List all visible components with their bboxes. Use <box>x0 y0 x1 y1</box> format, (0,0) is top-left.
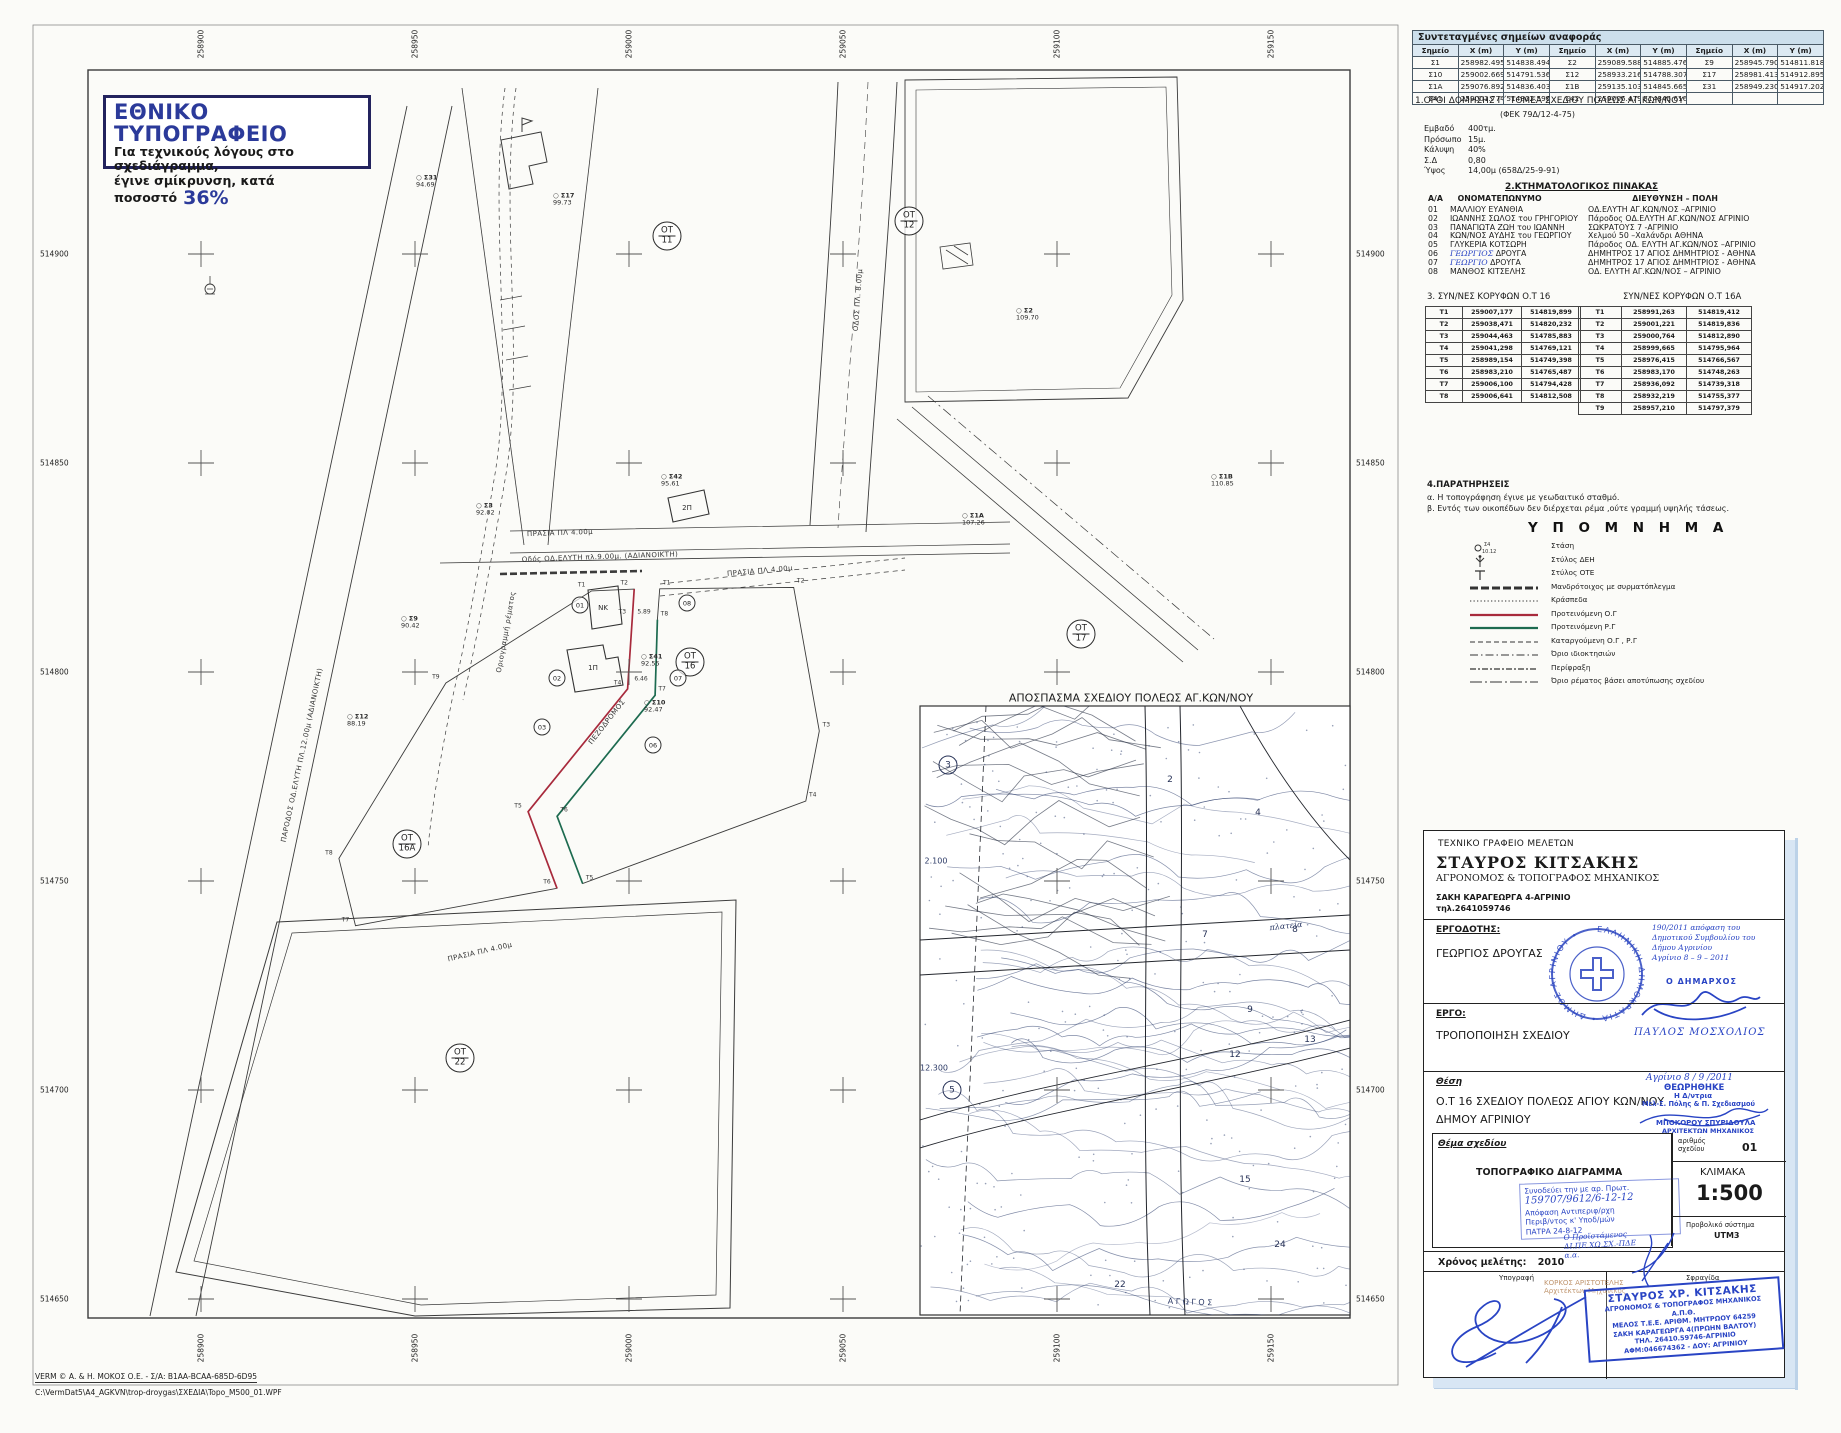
vertex-label-ot16: Τ6 <box>560 807 567 814</box>
drawing-no-label1: αριθμός <box>1678 1137 1706 1145</box>
grid-coordinate-label: 514850 <box>1356 459 1385 468</box>
grid-coordinate-label: 258900 <box>197 30 206 59</box>
inset-parcel-number: 9 <box>1247 1005 1253 1015</box>
study-label: Χρόνος μελέτης: <box>1438 1257 1526 1268</box>
legend-item-dots: Κράσπεδα <box>1468 594 1548 608</box>
printer-note-title: ΕΘΝΙΚΟ ΤΥΠΟΓΡΑΦΕΙΟ <box>114 101 360 145</box>
inset-parcel-number: 13 <box>1304 1035 1315 1045</box>
legend-item-wall: Μανδρότοιχος με συρματόπλεγμα <box>1468 581 1548 595</box>
grid-coordinate-label: 259000 <box>625 30 634 59</box>
building-term: Σ.Δ0,80 <box>1424 156 1486 165</box>
vertex-label-ot16a: Τ8 <box>325 849 332 856</box>
vertex-row: Τ6258983,170514748,263 <box>1579 367 1752 379</box>
grid-coordinate-label: 259000 <box>625 1334 634 1363</box>
vertex-label-ot16a: Τ5 <box>514 802 521 809</box>
parcel-number: 02 <box>549 670 566 687</box>
inset-sector-number: 3 <box>939 756 958 775</box>
engineer-address: ΣΑΚΗ ΚΑΡΑΓΕΩΡΓΑ 4-ΑΓΡΙΝΙΟ <box>1436 893 1571 902</box>
title-block: ΤΕΧΝΙΚΟ ΓΡΑΦΕΙΟ ΜΕΛΕΤΩΝ ΣΤΑΥΡΟΣ ΚΙΤΣΑΚΗΣ… <box>1423 830 1785 1378</box>
location-line2: ΔΗΜΟΥ ΑΓΡΙΝΙΟΥ <box>1436 1113 1531 1126</box>
vertex-label-ot16: Τ1 <box>663 579 670 586</box>
grid-coordinate-label: 258950 <box>411 30 420 59</box>
greek-cross-icon <box>1580 957 1614 991</box>
signature-label: Υπογραφή <box>1499 1274 1534 1282</box>
building-label: ΝΚ <box>598 604 608 612</box>
parcel-number: 06 <box>645 737 662 754</box>
ot-block-label: ΟΤ11 <box>653 222 682 251</box>
parcel-number: 08 <box>679 595 696 612</box>
study-year: 2010 <box>1538 1257 1564 1268</box>
section2-col-no: Α/Α <box>1428 194 1443 203</box>
employer-label: ΕΡΓΟΔΟΤΗΣ: <box>1436 925 1500 935</box>
inset-parcel-number: 12 <box>1229 1050 1240 1060</box>
vertex-label-ot16: Τ7 <box>658 686 665 693</box>
ref-table-header: Σημείο <box>1413 45 1459 57</box>
vertex-label-ot16a: Τ6 <box>543 879 550 886</box>
legend-label: Όριο ιδιοκτησιών <box>1551 649 1615 658</box>
legend-label: Μανδρότοιχος με συρματόπλεγμα <box>1551 582 1675 591</box>
legend-item-deh: Στύλος ΔΕΗ <box>1468 554 1548 568</box>
section3-heading-right: ΣΥΝ/ΝΕΣ ΚΟΡΥΦΩΝ Ο.Τ 16Α <box>1623 292 1741 302</box>
ot-block-label: ΟΤ22 <box>446 1044 475 1073</box>
legend-item-fence: Περίφραξη <box>1468 662 1548 676</box>
drawing-no-label2: σχεδίου <box>1678 1145 1706 1153</box>
legend-label: Περίφραξη <box>1551 663 1590 672</box>
ref-table-row: Σ10259002.669514791.536Σ12258933.2165147… <box>1413 69 1824 81</box>
legend-label: Στύλος ΟΤΕ <box>1551 568 1594 577</box>
vertex-label-ot16: Τ4 <box>809 792 816 799</box>
subject-name: ΤΟΠΟΓΡΑΦΙΚΟ ΔΙΑΓΡΑΜΜΑ <box>1476 1167 1622 1178</box>
section2-col-addr: ΔΙΕΥΘΥΝΣΗ – ΠΟΛΗ <box>1632 194 1718 203</box>
grid-coordinate-label: 514800 <box>40 668 69 677</box>
legend-label: Στύλος ΔΕΗ <box>1551 555 1595 564</box>
vertex-label-ot16a: Τ4 <box>614 679 621 686</box>
employer-name: ΓΕΩΡΓΙΟΣ ΔΡΟΥΓΑΣ <box>1436 947 1543 960</box>
inset-parcel-number: 24 <box>1274 1240 1285 1250</box>
subject-label: Θέμα σχεδίου <box>1438 1139 1506 1149</box>
scale-label: ΚΛΙΜΑΚΑ <box>1700 1167 1745 1178</box>
cadastral-owner-row: 01ΜΑΛΛΙΟΥ ΕΥΑΝΘΙΑΟΔ.ΕΛΥΤΗ ΑΓ.ΚΩΝ/ΝΟΣ –ΑΓ… <box>1428 205 1716 214</box>
legend-label: Καταργούμενη Ο.Γ , Ρ.Γ <box>1551 636 1637 645</box>
section3-heading-left: 3. ΣΥΝ/ΝΕΣ ΚΟΡΥΦΩΝ Ο.Τ 16 <box>1427 292 1550 302</box>
project-label: ΕΡΓΟ: <box>1436 1009 1466 1019</box>
legend-item-stream: Όριο ρέματος βάσει αποτύπωσης σχεδίου <box>1468 675 1548 689</box>
project-name: ΤΡΟΠΟΠΟΙΗΣΗ ΣΧΕΔΙΟΥ <box>1436 1029 1570 1042</box>
stream-line1 <box>428 88 505 848</box>
approval-date: Αγρίνιο 8 / 9 /2011 <box>1646 1073 1733 1083</box>
inset-parcel-number: 7 <box>1202 930 1208 940</box>
council-decision-note: 190/2011 απόφαση τουΔημοτικού Συμβουλίου… <box>1652 923 1755 964</box>
grid-coordinate-label: 259100 <box>1053 1334 1062 1363</box>
grid-coordinate-label: 514800 <box>1356 668 1385 677</box>
inset-text: 2.100 <box>925 857 948 866</box>
vertex-row: Τ5258989,154514749,398 <box>1426 355 1581 367</box>
approval-line2: Η Δ/ντρια <box>1674 1092 1712 1100</box>
vertex-row: Τ8258932,219514755,377 <box>1579 391 1752 403</box>
projection-label: Προβολικό σύστημα <box>1686 1221 1754 1229</box>
legend-title: Υ Π Ο Μ Ν Η Μ Α <box>1528 520 1728 536</box>
vertex-row: Τ7259006,100514794,428 <box>1426 379 1581 391</box>
reference-coordinates-table: Συντεταγμένες σημείων αναφοράς ΣημείοX (… <box>1412 30 1824 105</box>
survey-point-label: ○ Σ3194.69 <box>416 175 437 190</box>
cadastral-owner-row: 05ΓΛΥΚΕΡΙΑ ΚΟΤΣΩΡΗΠάροδος ΟΔ. ΕΛΥΤΗ ΑΓ.Κ… <box>1428 240 1756 249</box>
office-label: ΤΕΧΝΙΚΟ ΓΡΑΦΕΙΟ ΜΕΛΕΤΩΝ <box>1438 839 1574 849</box>
grid-coordinate-label: 258950 <box>411 1334 420 1363</box>
survey-point-label: ○ Σ4192.55 <box>641 654 662 669</box>
grid-coordinate-label: 259150 <box>1267 1334 1276 1363</box>
mayor-signature <box>1634 981 1764 1027</box>
legend-label: Όριο ρέματος βάσει αποτύπωσης σχεδίου <box>1551 676 1704 685</box>
ref-table-header: Y (m) <box>1641 45 1687 57</box>
building-term: Πρόσωπο15μ. <box>1424 135 1486 144</box>
file-path: C:\VermDat5\A4_AGKVN\trop-droygas\ΣΧΕΔΙΑ… <box>35 1388 282 1397</box>
grid-coordinate-label: 514650 <box>40 1295 69 1304</box>
legend-item-ote: Στύλος ΟΤΕ <box>1468 567 1548 581</box>
grid-coordinate-label: 259050 <box>839 1334 848 1363</box>
engineer-profession: ΑΓΡΟΝΟΜΟΣ & ΤΟΠΟΓΡΑΦΟΣ ΜΗΧΑΝΙΚΟΣ <box>1436 873 1659 884</box>
grid-coordinate-label: 514750 <box>40 877 69 886</box>
ref-table-header: Y (m) <box>1504 45 1550 57</box>
ref-table-header: X (m) <box>1458 45 1504 57</box>
grid-coordinate-label: 259050 <box>839 30 848 59</box>
section2-heading: 2.ΚΤΗΜΑΤΟΛΟΓΙΚΟΣ ΠΙΝΑΚΑΣ <box>1505 182 1658 192</box>
vertex-row: Τ3259000,764514812,890 <box>1579 331 1752 343</box>
plot-software-credit: VERM © Α. & Η. ΜΟΚΟΣ Ο.Ε. - Σ/Α: Β1ΑΑ-ΒC… <box>35 1372 257 1383</box>
legend-item-stasi: Σ410.12Στάση <box>1468 540 1548 554</box>
grid-coordinate-label: 514650 <box>1356 1295 1385 1304</box>
inset-title: ΑΠΟΣΠΑΣΜΑ ΣΧΕΔΙΟΥ ΠΟΛΕΩΣ ΑΓ.ΚΩΝ/ΝΟΥ <box>1009 692 1253 705</box>
vertex-row: Τ7258936,092514739,318 <box>1579 379 1752 391</box>
reduction-percent: 36% <box>183 187 228 209</box>
section1-fek: (ΦΕΚ 79Δ/12-4-75) <box>1500 110 1575 119</box>
survey-point-label: ○ Σ1Β110.85 <box>1211 474 1234 489</box>
section2-col-name: ΟΝΟΜΑΤΕΠΩΝΥΜΟ <box>1458 194 1542 203</box>
vertex-label-ot16: Τ5 <box>586 874 593 881</box>
inset-sector-number: 5 <box>943 1081 962 1100</box>
vertex-row: Τ4259041,298514769,121 <box>1426 343 1581 355</box>
scanned-topographic-sheet: { "printer_note": { "title": "ΕΘΝΙΚΟ ΤΥΠ… <box>0 0 1841 1433</box>
printer-note-line1: Για τεχνικούς λόγους στο σχεδιάγραμμα, <box>114 145 360 174</box>
parcel-number: 01 <box>572 597 589 614</box>
vertex-row: Τ2259001,221514819,836 <box>1579 319 1752 331</box>
vertex-row: Τ5258976,415514766,567 <box>1579 355 1752 367</box>
location-line1: Ο.Τ 16 ΣΧΕΔΙΟΥ ΠΟΛΕΩΣ ΑΓΙΟΥ ΚΩΝ/ΝΟΥ <box>1436 1095 1664 1108</box>
vertex-row: Τ9258957,210514797,379 <box>1579 403 1752 415</box>
ot-block-label: ΟΤ16Α <box>393 830 422 859</box>
legend-item-green: Προτεινόμενη Ρ.Γ <box>1468 621 1548 635</box>
vertex-label-ot16a: Τ7 <box>342 916 349 923</box>
inset-text: Α Γ Ω Γ Ο Σ <box>1168 1297 1213 1308</box>
vertex-label-ot16: Τ3 <box>823 722 830 729</box>
building-term: Εμβαδό400τμ. <box>1424 124 1496 133</box>
vertex-label-ot16a: Τ3 <box>619 609 626 616</box>
vertex-row: Τ3259044,463514785,883 <box>1426 331 1581 343</box>
grid-coordinate-label: 514850 <box>40 459 69 468</box>
ref-table-header: Σημείο <box>1686 45 1732 57</box>
cadastral-owner-row: 02ΙΩΑΝΝΗΣ ΣΩΛΟΣ του ΓΡΗΓΟΡΙΟΥΠάροδος ΟΔ.… <box>1428 214 1749 223</box>
dimension-label: 6.46 <box>634 676 647 683</box>
road-left-line2 <box>196 106 452 1316</box>
ref-table-header: Σημείο <box>1549 45 1595 57</box>
inset-map <box>920 669 1409 1330</box>
cadastral-owner-row: 03ΠΑΝΑΓΙΩΤΑ ΖΩΗ του ΙΩΑΝΝΗΣΩΚΡΑΤΟΥΣ 7 -Α… <box>1428 223 1678 232</box>
parcel-number: 03 <box>534 719 551 736</box>
vertex-label-ot16: Τ2 <box>797 578 804 585</box>
scanned-page-edge <box>1795 838 1798 1390</box>
legend-label: Κράσπεδα <box>1551 595 1587 604</box>
grid-coordinate-label: 514900 <box>40 250 69 259</box>
survey-point-label: ○ Σ2109.70 <box>1016 308 1039 323</box>
cadastral-owner-row: 07ΓΕΩΡΓΙΟ ΔΡΟΥΓΑΔΗΜΗΤΡΟΣ 17 ΑΓΙΟΣ ΔΗΜΗΤΡ… <box>1428 258 1756 267</box>
inset-parcel-number: 15 <box>1239 1175 1250 1185</box>
survey-point-label: ○ Σ1092.47 <box>644 700 665 715</box>
parcel-number: 07 <box>670 670 687 687</box>
ot-block-label: ΟΤ12 <box>895 207 924 236</box>
section4-heading: 4.ΠΑΡΑΤΗΡΗΣΕΙΣ <box>1427 480 1509 490</box>
vertex-row: Τ6258983,210514765,487 <box>1426 367 1581 379</box>
approval-name: ΜΠΟΚΟΡΟΥ ΣΠΥΡΙΔΟΥΛΑ <box>1656 1119 1755 1127</box>
survey-point-label: ○ Σ4295.61 <box>661 474 682 489</box>
survey-point-label: ○ Σ1Α107.26 <box>962 513 985 528</box>
building-term: Κάλυψη40% <box>1424 145 1486 154</box>
vertices-table-ot16: Τ1259007,177514819,899Τ2259038,471514820… <box>1425 306 1581 403</box>
inset-parcel-number: 22 <box>1114 1280 1125 1290</box>
vertices-table-ot16a: Τ1258991,263514819,412Τ2259001,221514819… <box>1578 306 1752 415</box>
building-term: Ύψος14,00μ (658Δ/25-9-91) <box>1424 166 1559 175</box>
vertex-row: Τ4258999,665514795,964 <box>1579 343 1752 355</box>
grid-coordinate-label: 258900 <box>197 1334 206 1363</box>
cadastral-owner-row: 08ΜΑΝΘΟΣ ΚΙΤΣΕΛΗΣΟΔ. ΕΛΥΤΗ ΑΓ.ΚΩΝ/ΝΟΣ – … <box>1428 267 1721 276</box>
engineer-name: ΣΤΑΥΡΟΣ ΚΙΤΣΑΚΗΣ <box>1436 853 1639 872</box>
ref-table-row: Σ1258982.495514838.494Σ2259089.588514885… <box>1413 57 1824 69</box>
survey-point-label: ○ Σ990.42 <box>401 616 420 631</box>
ref-table-header: Y (m) <box>1778 45 1824 57</box>
ref-table-row: Σ1Α259076.892514836.403Σ1Β259135.1035148… <box>1413 81 1824 93</box>
inset-parcel-number: 4 <box>1255 808 1261 818</box>
vertex-label-ot16a: Τ2 <box>620 580 627 587</box>
inset-parcel-number: 2 <box>1167 775 1173 785</box>
legend-label: Στάση <box>1551 541 1574 550</box>
building-label: 1Π <box>588 664 598 672</box>
grid-coordinate-label: 259100 <box>1053 30 1062 59</box>
grid-coordinate-label: 514700 <box>40 1086 69 1095</box>
ot-block-label: ΟΤ17 <box>1067 620 1096 649</box>
ref-table-header: X (m) <box>1732 45 1778 57</box>
building-label: 2Π <box>682 504 692 512</box>
legend-label: Προτεινόμενη Ο.Γ <box>1551 609 1617 618</box>
legend-item-dashed: Καταργούμενη Ο.Γ , Ρ.Γ <box>1468 635 1548 649</box>
head-official-signature <box>1614 1223 1684 1293</box>
proposed-og-red-line <box>528 589 634 888</box>
vertex-row: Τ1259007,177514819,899 <box>1426 307 1581 319</box>
section4-note-a: α. Η τοπογράφηση έγινε με γεωδαιτικό στα… <box>1427 493 1619 502</box>
vertex-label-ot16a: Τ1 <box>578 581 585 588</box>
ref-table-header: X (m) <box>1595 45 1641 57</box>
survey-point-label: ○ Σ1799.73 <box>553 193 574 208</box>
inset-text: 12.300 <box>920 1064 948 1073</box>
grid-coordinate-label: 514700 <box>1356 1086 1385 1095</box>
survey-point-label: ○ Σ392.02 <box>476 503 495 518</box>
section4-note-b: β. Εντός των οικοπέδων δεν διέρχεται ρέμ… <box>1427 504 1729 513</box>
vertex-label-ot16: Τ8 <box>661 610 668 617</box>
dimension-label: 5.89 <box>637 609 650 616</box>
engineer-phone: τηλ.2641059746 <box>1436 904 1511 913</box>
mayor-name-handwritten: ΠΑΥΛΟΣ ΜΟΣΧΟΛΙΟΣ <box>1634 1027 1765 1038</box>
drawing-no: 01 <box>1742 1141 1757 1154</box>
section1-heading: 1.ΟΡΟΙ ΔΟΜΗΣΗΣ Γ΄ ΤΟΜΕΑ ΣΧΕΔΙΟΥ ΠΟΛΕΩΣ Α… <box>1415 96 1684 106</box>
vertex-row: Τ8259006,641514812,508 <box>1426 391 1581 403</box>
grid-coordinate-label: 514750 <box>1356 877 1385 886</box>
survey-point-label: ○ Σ1288.19 <box>347 714 368 729</box>
vertex-row: Τ2259038,471514820,232 <box>1426 319 1581 331</box>
grid-coordinate-label: 259150 <box>1267 30 1276 59</box>
vertex-label-ot16a: Τ9 <box>432 673 439 680</box>
legend-item-dashdot: Όριο ιδιοκτησιών <box>1468 648 1548 662</box>
cadastral-owner-row: 06ΓΕΩΡΓΙΟΣ ΔΡΟΥΓΑΔΗΜΗΤΡΟΣ 17 ΑΓΙΟΣ ΔΗΜΗΤ… <box>1428 249 1756 258</box>
ref-table-title: Συντεταγμένες σημείων αναφοράς <box>1413 31 1824 45</box>
svg-text:Σ4: Σ4 <box>1484 542 1490 548</box>
projection-value: UTM3 <box>1714 1231 1739 1240</box>
legend-item-red: Προτεινόμενη Ο.Γ <box>1468 608 1548 622</box>
road-left-line1 <box>150 106 407 1316</box>
grid-coordinate-label: 514900 <box>1356 250 1385 259</box>
location-label: Θέση <box>1436 1077 1462 1087</box>
scale-value: 1:500 <box>1696 1181 1763 1205</box>
vertex-row: Τ1258991,263514819,412 <box>1579 307 1752 319</box>
approval-title: ΑΡΧΙΤΕΚΤΩΝ ΜΗΧΑΝΙΚΟΣ <box>1662 1127 1754 1135</box>
cadastral-owner-row: 04ΚΩΝ/ΝΟΣ ΑΥΔΗΣ του ΓΕΩΡΓΙΟΥΧελμού 50 –Χ… <box>1428 231 1703 240</box>
engineer-rect-stamp: ΣΤΑΥΡΟΣ ΧΡ. ΚΙΤΣΑΚΗΣΑΓΡΟΝΟΜΟΣ & ΤΟΠΟΓΡΑΦ… <box>1584 1276 1785 1363</box>
legend-label: Προτεινόμενη Ρ.Γ <box>1551 622 1615 631</box>
printer-reduction-note: ΕΘΝΙΚΟ ΤΥΠΟΓΡΑΦΕΙΟ Για τεχνικούς λόγους … <box>103 95 371 169</box>
